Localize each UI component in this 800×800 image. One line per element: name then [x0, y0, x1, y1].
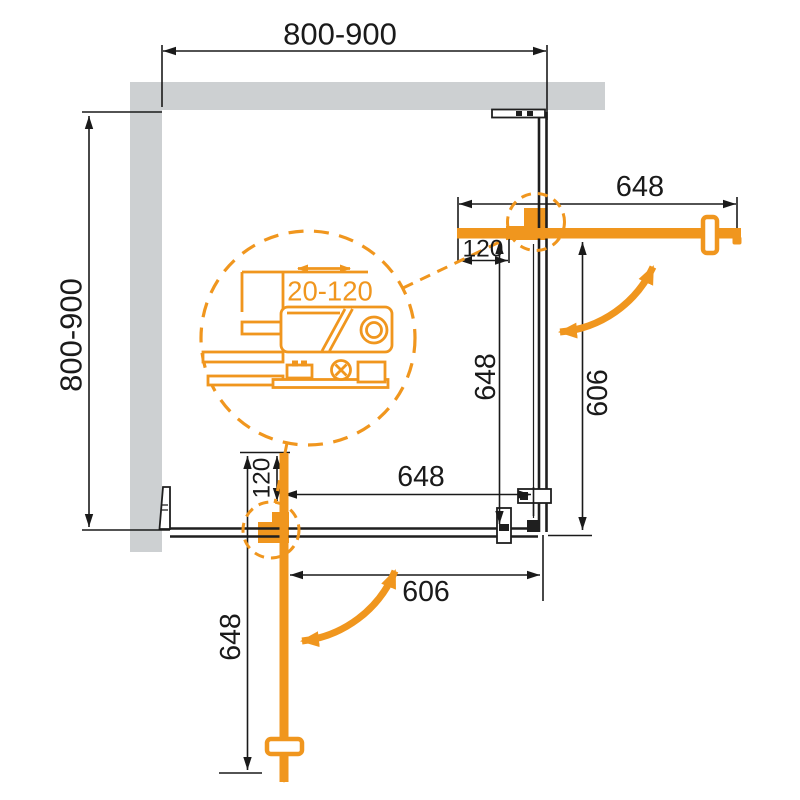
dim-side-depth-label: 800-900: [54, 278, 89, 392]
right-door-handle: [703, 217, 717, 253]
right-door-swing-arrow: [560, 267, 653, 332]
dim-top-width-label: 800-900: [283, 17, 397, 52]
dim-right-door-open-label: 648: [470, 353, 502, 401]
dim-right-door-width-label: 648: [616, 171, 664, 203]
corner-connector: [497, 489, 551, 543]
extension-lines: [82, 45, 737, 773]
enclosure-plan-drawing: 800-900 800-900 648 120 648 606 648 606 …: [0, 0, 800, 800]
detail-range-label: 20-120: [287, 276, 373, 307]
detail-view: [201, 231, 415, 445]
drawing-canvas: 800-900 800-900 648 120 648 606 648 606 …: [0, 0, 800, 800]
dim-bottom-door-width-label: 648: [397, 461, 445, 493]
bottom-door-open: [267, 453, 302, 783]
dim-right-fixed-label: 606: [582, 369, 614, 417]
bottom-door-swing-arrow: [302, 571, 395, 641]
top-wall-profile: [492, 110, 545, 118]
dim-bottom-fixed-label: 606: [402, 576, 450, 608]
right-glass-panel: [534, 112, 547, 532]
top-wall: [130, 82, 605, 110]
bottom-glass-panel: [170, 529, 538, 537]
dim-bottom-door-offset-label: 120: [249, 458, 276, 499]
dim-bottom-door-open-label: 648: [215, 613, 247, 661]
bottom-door-handle: [267, 739, 302, 754]
dimension-lines: [89, 51, 736, 770]
dim-right-door-offset-label: 120: [463, 236, 504, 263]
left-wall: [130, 82, 162, 552]
